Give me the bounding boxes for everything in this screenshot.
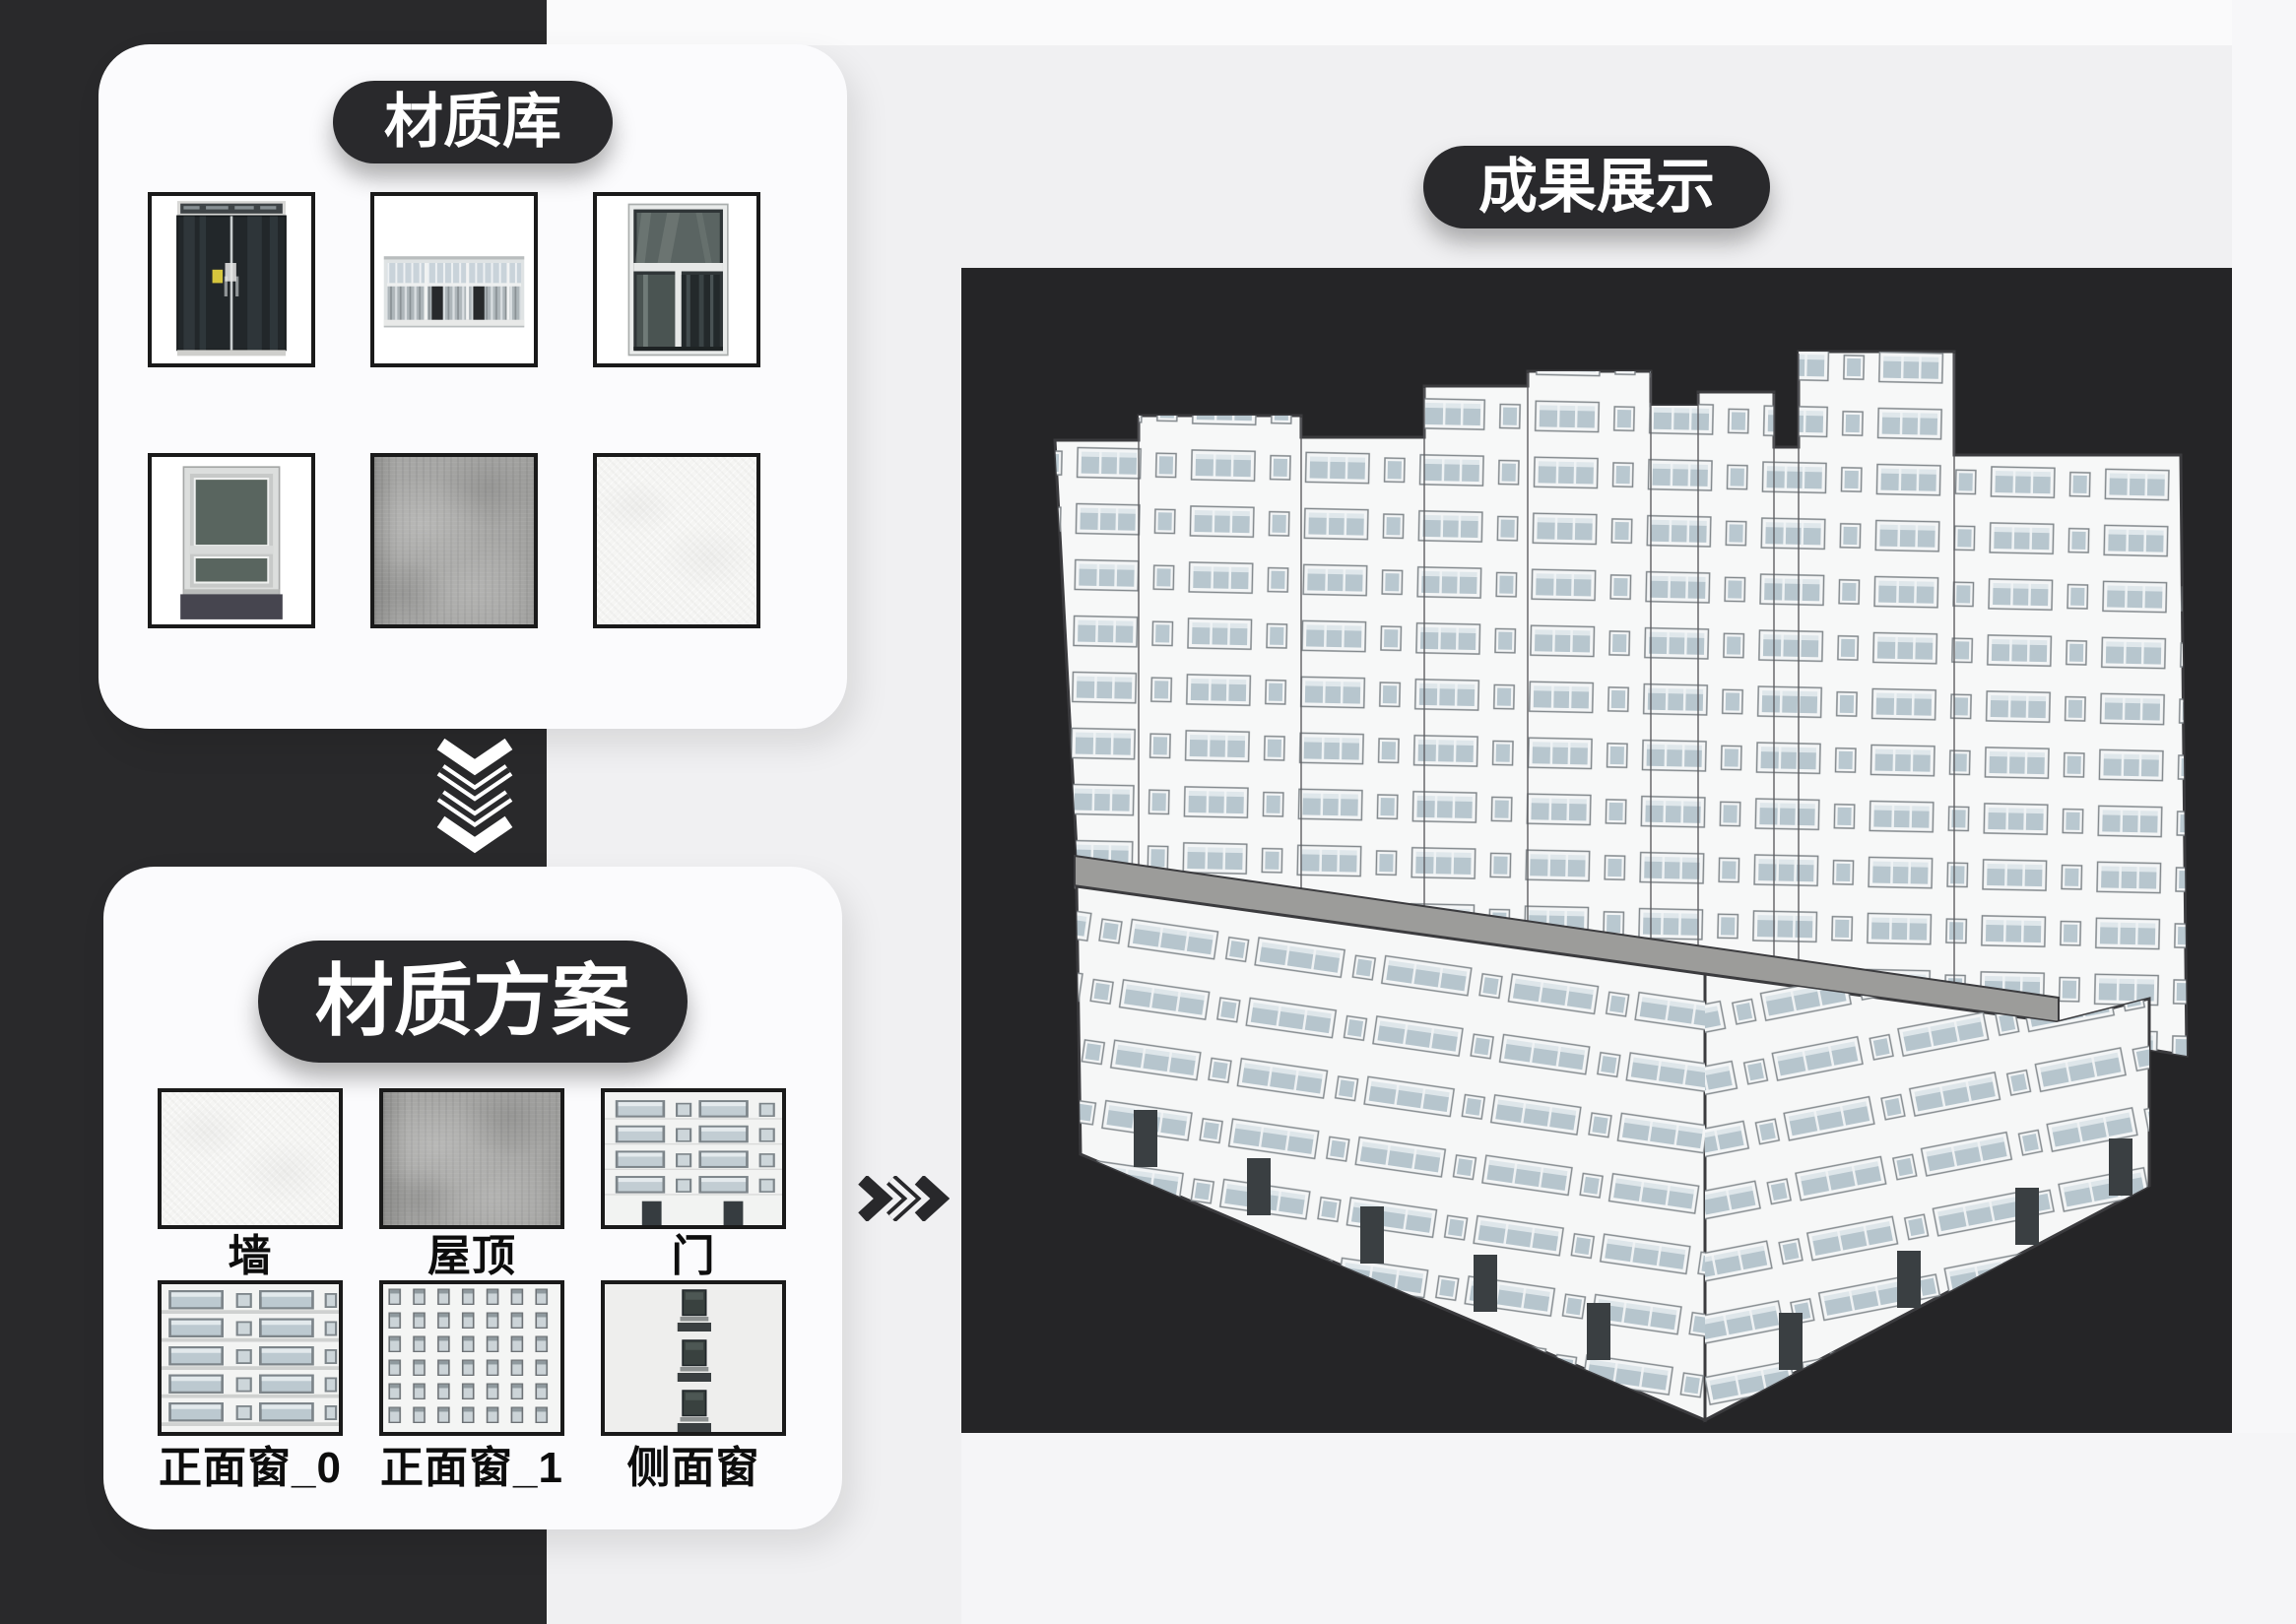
material-library-badge-label: 材质库 xyxy=(384,89,561,155)
result-badge-label: 成果展示 xyxy=(1478,154,1715,220)
side-window-units xyxy=(678,1290,711,1432)
material-library-grid xyxy=(148,192,798,628)
plaster-texture-thumbnail xyxy=(593,453,760,628)
infographic-canvas: 材质库 xyxy=(0,0,2296,1624)
door-facade-thumbnail xyxy=(601,1088,786,1229)
material-scheme-card: 材质方案 墙 屋顶 xyxy=(103,867,842,1529)
scheme-item-roof: 屋顶 xyxy=(379,1088,564,1280)
material-library-card: 材质库 xyxy=(98,44,847,729)
front-window-1-thumbnail xyxy=(379,1280,564,1436)
wall-label: 墙 xyxy=(229,1232,273,1280)
roof-texture-thumbnail xyxy=(379,1088,564,1229)
front-window-1-label: 正面窗_1 xyxy=(380,1444,563,1492)
front-window-0-label: 正面窗_0 xyxy=(159,1444,342,1492)
door-facade-image xyxy=(605,1092,782,1225)
scheme-item-door: 门 xyxy=(601,1088,786,1280)
wall-texture-thumbnail xyxy=(158,1088,343,1229)
result-panel xyxy=(961,268,2232,1433)
background-top-strip xyxy=(547,0,2296,45)
roof-label: 屋顶 xyxy=(427,1232,516,1280)
side-window-image xyxy=(605,1284,782,1432)
triple-chevron-right-icon xyxy=(855,1176,950,1221)
side-window-label: 侧面窗 xyxy=(627,1444,760,1492)
material-scheme-grid: 墙 屋顶 xyxy=(158,1088,788,1492)
front-window-0-thumbnail xyxy=(158,1280,343,1436)
band-window-image xyxy=(374,196,534,363)
scheme-item-front-window-0: 正面窗_0 xyxy=(158,1280,343,1492)
side-window-thumbnail xyxy=(601,1280,786,1436)
material-scheme-badge: 材质方案 xyxy=(258,941,688,1063)
scheme-item-wall: 墙 xyxy=(158,1088,343,1280)
background-right-column xyxy=(2232,0,2296,1624)
facade-door-right xyxy=(724,1202,744,1225)
scheme-item-side-window: 侧面窗 xyxy=(601,1280,786,1492)
front-window-1-image xyxy=(383,1284,560,1432)
triple-chevron-down-icon xyxy=(426,739,524,855)
front-window-0-rows xyxy=(162,1290,339,1426)
building-render xyxy=(961,268,2232,1433)
tall-window-photo-thumbnail xyxy=(593,192,760,367)
sill-window-photo-thumbnail xyxy=(148,453,315,628)
background-bottom-area xyxy=(961,1433,2296,1624)
material-scheme-badge-label: 材质方案 xyxy=(315,957,630,1045)
glass-door-photo-thumbnail xyxy=(148,192,315,367)
glass-door-image xyxy=(152,196,311,363)
tall-window-image xyxy=(597,196,756,363)
facade-door-left xyxy=(642,1202,662,1225)
band-window-photo-thumbnail xyxy=(370,192,538,367)
front-window-0-image xyxy=(162,1284,339,1432)
result-badge: 成果展示 xyxy=(1423,146,1770,228)
material-library-badge: 材质库 xyxy=(333,81,613,163)
door-label: 门 xyxy=(672,1232,716,1280)
concrete-texture-thumbnail xyxy=(370,453,538,628)
scheme-item-front-window-1: 正面窗_1 xyxy=(379,1280,564,1492)
sill-window-image xyxy=(152,457,311,624)
